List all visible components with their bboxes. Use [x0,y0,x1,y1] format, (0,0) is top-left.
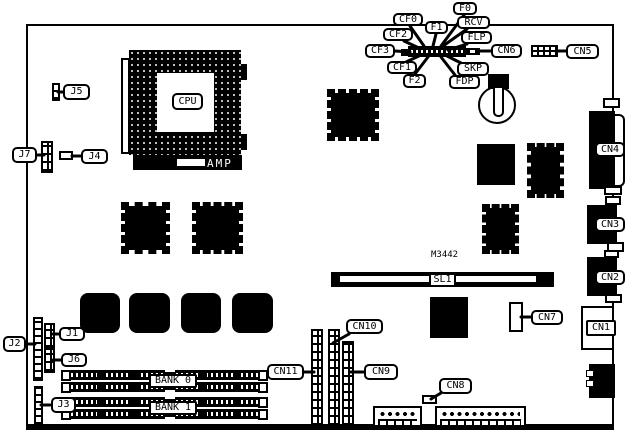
label-f2: F2 [403,74,426,88]
label-j5: J5 [63,84,90,100]
label-cn6: CN6 [491,44,522,58]
label-flp: FLP [461,31,492,44]
label-cf3: CF3 [365,44,395,58]
label-cn3: CN3 [595,217,625,232]
sl1-label: SL1 [429,273,456,287]
label-cn1: CN1 [586,320,616,336]
cpu-label: CPU [172,93,203,110]
label-j1: J1 [59,327,85,341]
label-cn7: CN7 [531,310,563,325]
label-f1: F1 [425,21,448,34]
label-cn5: CN5 [566,44,599,59]
label-j3: J3 [51,397,76,413]
label-cn11: CN11 [267,364,304,380]
label-fdp: FDP [449,75,480,89]
label-f0: F0 [453,2,477,15]
label-cn4: CN4 [595,142,625,157]
label-cf0: CF0 [393,13,423,26]
label-j4: J4 [81,149,108,164]
bank0-label: BANK 0 [149,374,197,388]
label-cn2: CN2 [595,270,625,285]
motherboard-diagram: CPU AMP F0 CF0 F1 RCV CF2 FLP CF3 CF1 SK… [0,0,629,440]
label-j6: J6 [61,353,87,367]
leader-lines [0,0,629,440]
label-cf1: CF1 [387,61,417,74]
label-j2: J2 [3,336,26,352]
label-cn8: CN8 [439,378,472,394]
label-cn10: CN10 [346,319,383,334]
label-skp: SKP [457,62,489,76]
bank1-label: BANK 1 [149,401,197,415]
label-rcv: RCV [457,16,490,29]
label-j7: J7 [12,147,37,163]
label-cf2: CF2 [383,28,413,41]
label-cn9: CN9 [364,364,398,380]
